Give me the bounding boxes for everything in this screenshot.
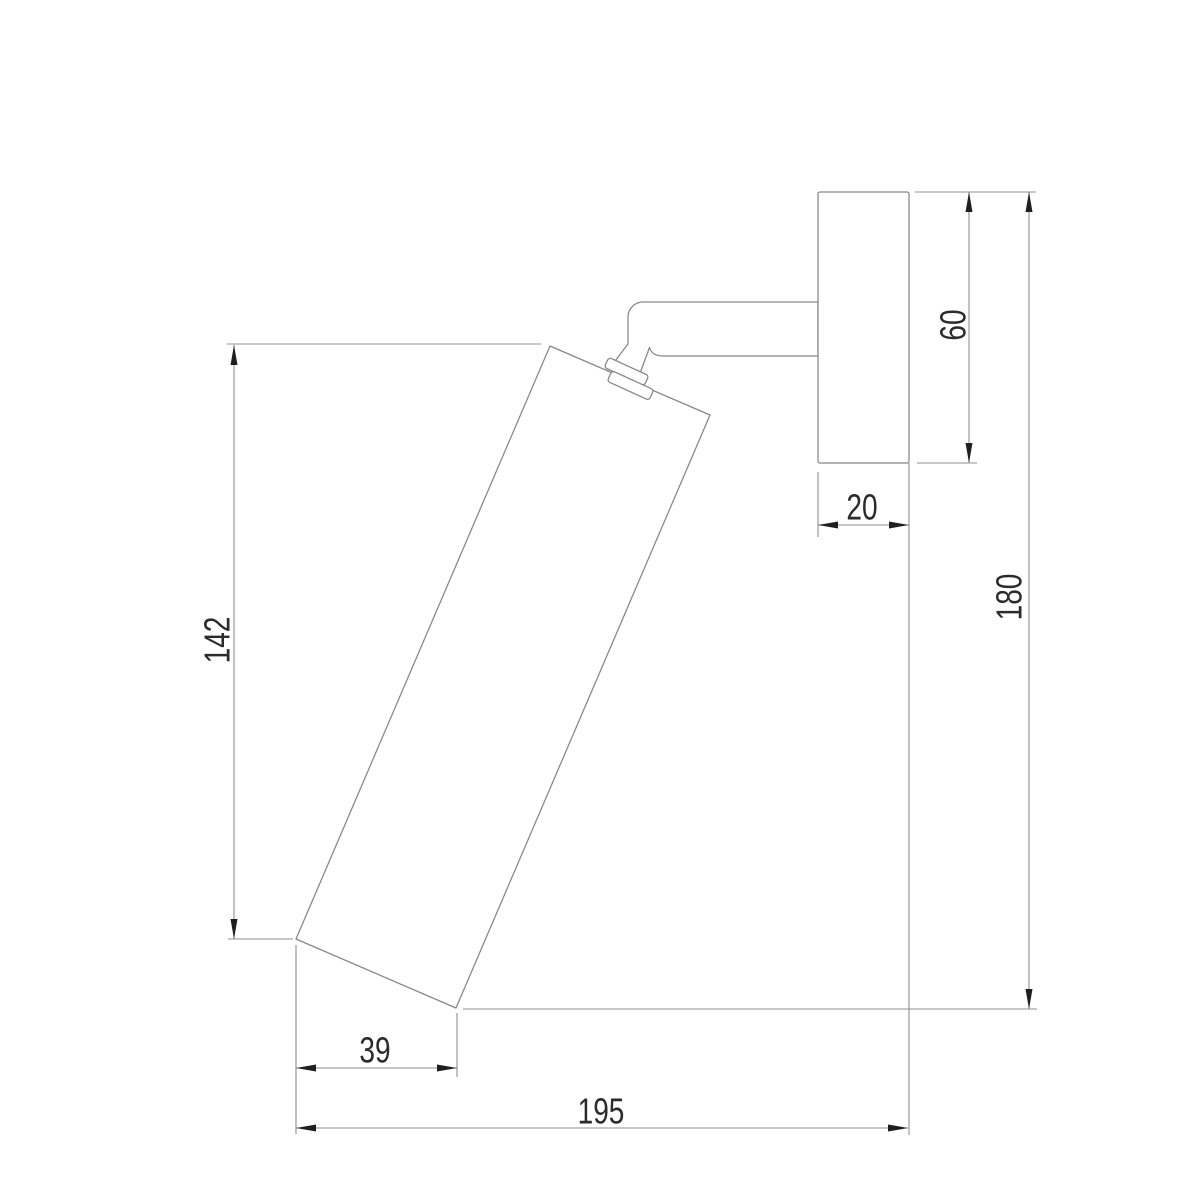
dimension-label: 60 (933, 309, 973, 340)
dimension-plate-depth: 20 (818, 463, 909, 1135)
extension-line (818, 463, 909, 1135)
mount-plate (818, 192, 909, 463)
dimension-label: 142 (197, 617, 237, 664)
arm-with-pivot-stem (612, 302, 818, 376)
lamp-body (296, 346, 710, 1008)
dimension-label: 39 (359, 1030, 390, 1070)
dimension-overall-depth: 195 (296, 1091, 908, 1132)
technical-drawing-canvas: 142 60 180 20 39 (0, 0, 1200, 1200)
technical-drawing: 142 60 180 20 39 (0, 0, 1200, 1200)
dimension-label: 180 (989, 574, 1029, 621)
fixture-outline (296, 192, 909, 1008)
dimension-plate-height: 60 (917, 192, 977, 463)
dimension-label: 195 (578, 1091, 625, 1131)
dimension-label: 20 (846, 487, 877, 527)
